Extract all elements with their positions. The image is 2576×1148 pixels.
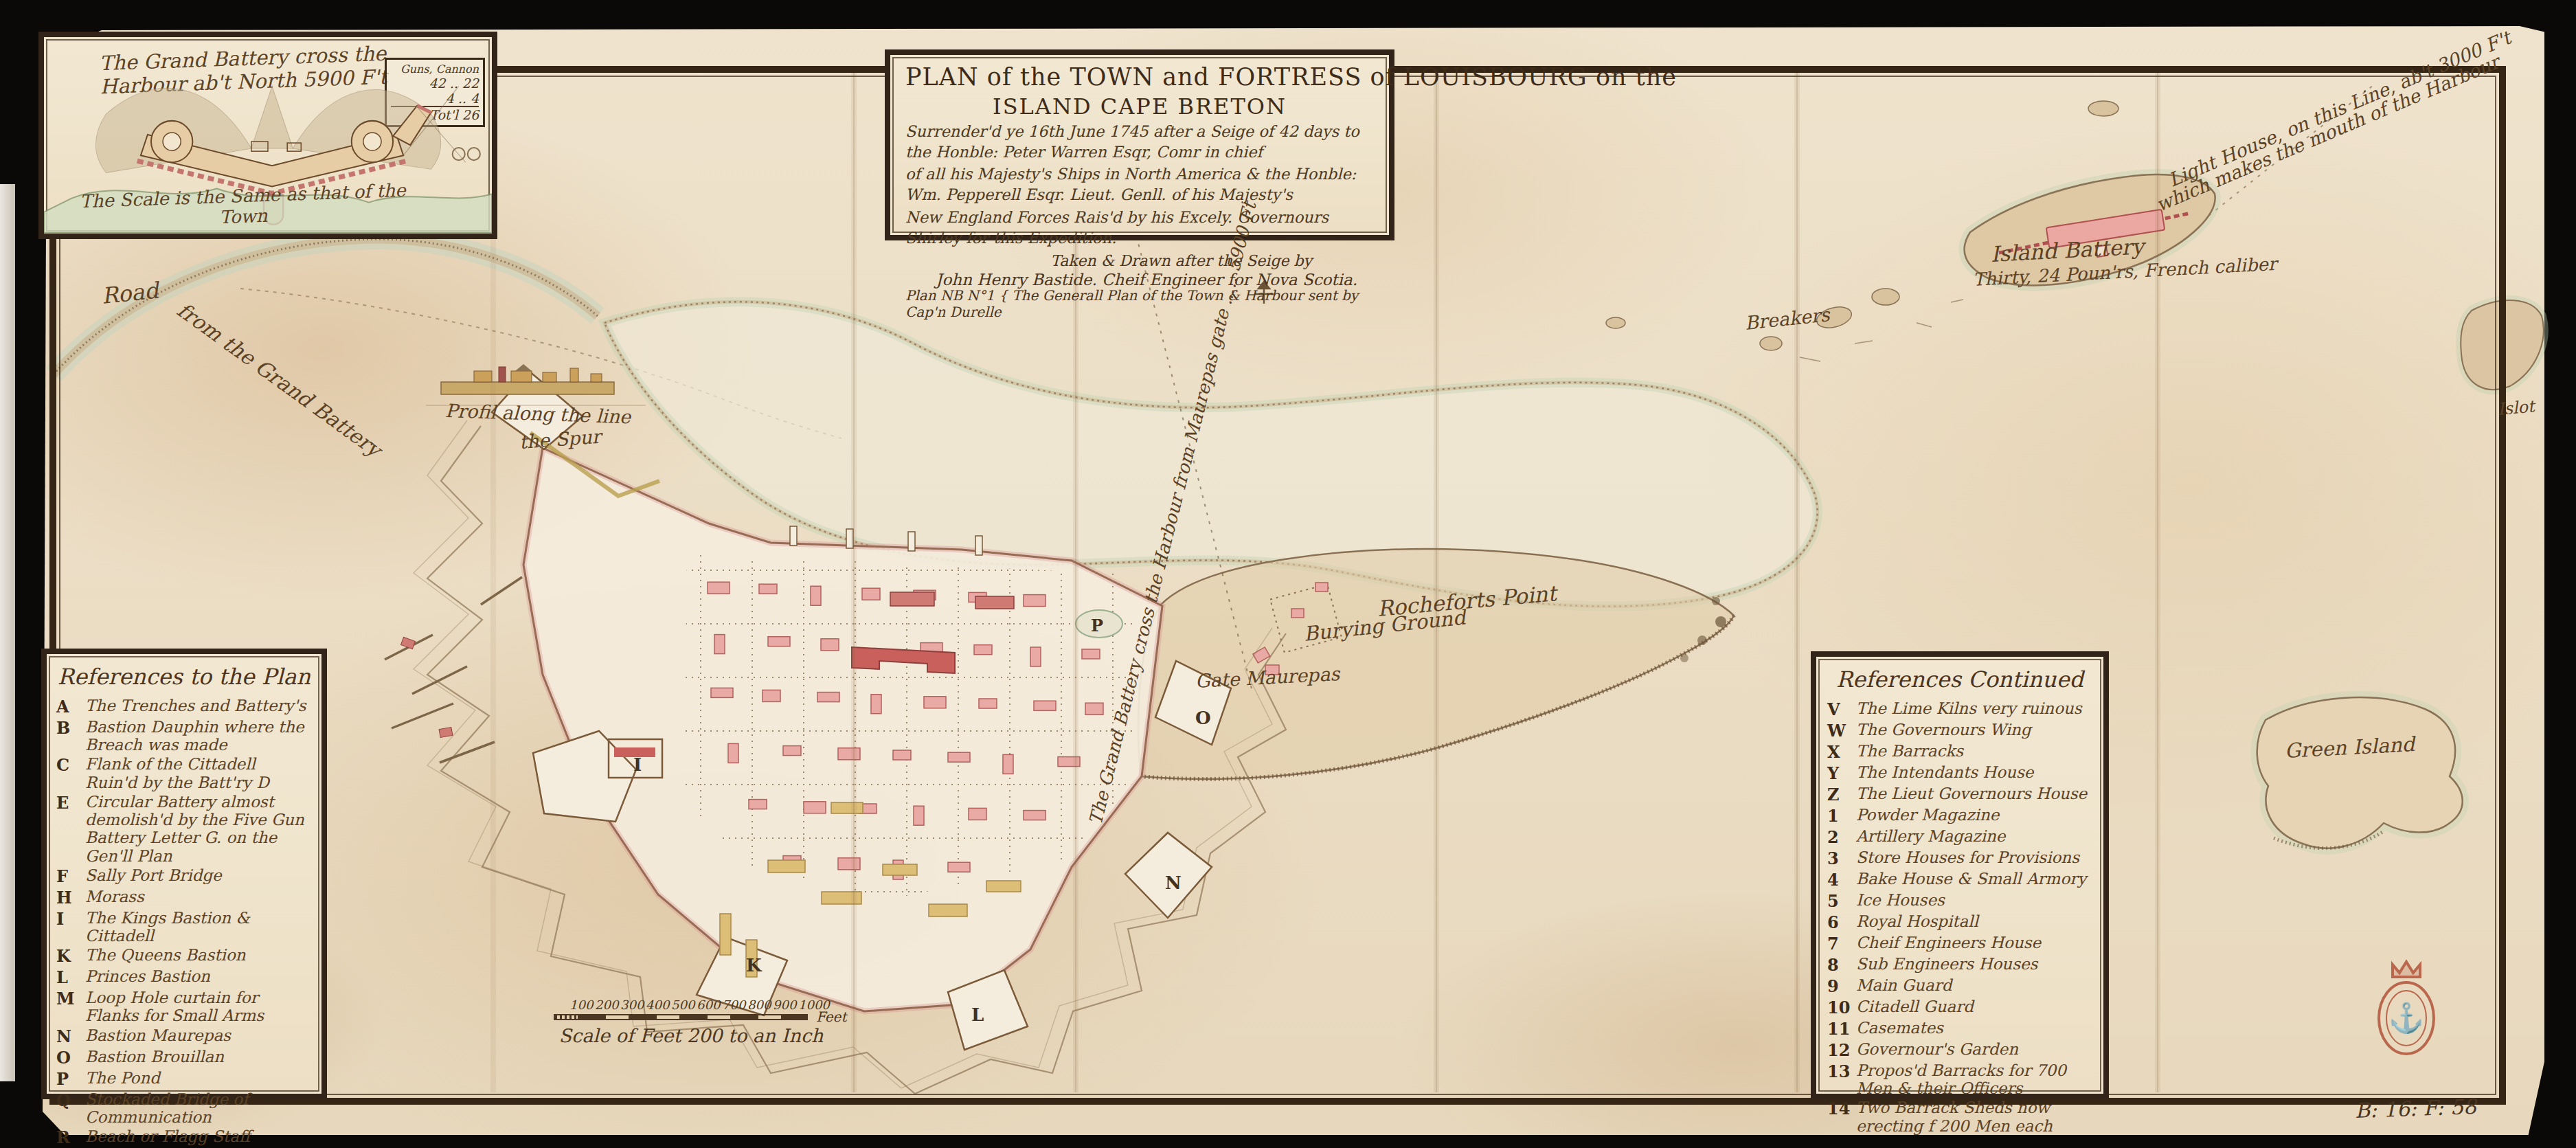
reference-item: ZThe Lieut Governours House <box>1827 785 2092 804</box>
reference-item: HMorass <box>56 888 312 908</box>
plan-note: Plan NB N°1 { The Generall Plan of the T… <box>905 287 1374 320</box>
map-title-line1: PLAN of the TOWN and FORTRESS of LOUISBO… <box>905 63 1374 91</box>
reference-item: 4Bake House & Small Armory <box>1827 870 2092 890</box>
reference-item: KThe Queens Bastion <box>56 946 312 966</box>
reference-item: AThe Trenches and Battery's <box>56 697 312 717</box>
references-continued-panel: References Continued VThe Lime Kilns ver… <box>1811 651 2109 1099</box>
reference-item: QStockaded Bridge of Communication <box>56 1090 312 1126</box>
reference-item: WThe Governours Wing <box>1827 721 2092 741</box>
reference-item: 11Casemates <box>1827 1019 2092 1039</box>
taken-by-line: Taken & Drawn after the Seige by <box>905 252 1374 269</box>
title-cartouche: PLAN of the TOWN and FORTRESS of LOUISBO… <box>885 49 1394 240</box>
dedication-line: of all his Majesty's Ships in North Amer… <box>905 164 1374 205</box>
reference-item: MLoop Hole curtain for Flanks for Small … <box>56 989 312 1024</box>
reference-item: OBastion Brouillan <box>56 1048 312 1068</box>
reference-item: XThe Barracks <box>1827 742 2092 762</box>
references-continued-title: References Continued <box>1827 666 2092 693</box>
reference-item: 14Two Barrack Sheds now erecting f 200 M… <box>1827 1099 2092 1134</box>
reference-item: 8Sub Engineers Houses <box>1827 955 2092 975</box>
reference-item: YThe Intendants House <box>1827 763 2092 783</box>
reference-item: 6Royal Hospitall <box>1827 912 2092 932</box>
lighthouse-sight-line <box>2195 82 2377 227</box>
reference-item: NBastion Maurepas <box>56 1026 312 1046</box>
references-plan-list: AThe Trenches and Battery'sBBastion Daup… <box>56 697 312 1148</box>
reference-item: RBeach or Flagg Staff Battery <box>56 1127 312 1148</box>
reference-item: VThe Lime Kilns very ruinous <box>1827 699 2092 719</box>
references-continued-list: VThe Lime Kilns very ruinousWThe Governo… <box>1827 699 2092 1135</box>
royal-crest-stamp-icon: ⚓ <box>2369 955 2444 1068</box>
map-title-line2: ISLAND CAPE BRETON <box>905 93 1374 120</box>
reference-item: 7Cheif Engineers House <box>1827 934 2092 954</box>
reference-item: 10Citadell Guard <box>1827 998 2092 1017</box>
island-battery-island <box>1965 175 2215 285</box>
reference-item: 5Ice Houses <box>1827 891 2092 911</box>
references-plan-title: References to the Plan <box>56 664 312 690</box>
reference-item: ECircular Battery almost demolish'd by t… <box>56 793 312 865</box>
margin-note: B: 16: F: 58 <box>2354 1094 2476 1123</box>
reference-item: 12Governour's Garden <box>1827 1040 2092 1060</box>
reference-item: 9Main Guard <box>1827 976 2092 996</box>
dedication-line: New England Forces Rais'd by his Excely.… <box>905 207 1374 248</box>
reference-item: BBastion Dauphin where the Breach was ma… <box>56 718 312 754</box>
reference-item: 13Propos'd Barracks for 700 Men & their … <box>1827 1061 2092 1097</box>
scanned-map-image: The Grand Battery cross the Harbour ab't… <box>0 0 2576 1148</box>
reference-item: LPrinces Bastion <box>56 967 312 987</box>
green-island <box>2257 697 2463 848</box>
siege-trenches <box>385 577 522 763</box>
reference-item: 1Powder Magazine <box>1827 806 2092 826</box>
author-line: John Henry Bastide. Cheif Engineer for N… <box>905 271 1374 289</box>
anchor-icon: ⚓ <box>2388 1001 2425 1035</box>
references-plan-panel: References to the Plan AThe Trenches and… <box>41 649 327 1099</box>
reference-item: IThe Kings Bastion & Cittadell <box>56 909 312 945</box>
reference-item: CFlank of the Cittadell Ruin'd by the Ba… <box>56 755 312 791</box>
dedication-line: Surrender'd ye 16th June 1745 after a Se… <box>905 121 1374 162</box>
grand-battery-inset: The Grand Battery cross the Harbour ab't… <box>38 32 497 239</box>
scale-bar: 1002003004005006007008009001000FeetScale… <box>554 998 842 1053</box>
plan-note-label: Plan NB N°1 { <box>905 287 1008 304</box>
reference-item: PThe Pond <box>56 1069 312 1089</box>
reference-item: 2Artillery Magazine <box>1827 827 2092 847</box>
east-islet <box>2461 300 2543 390</box>
reference-item: FSally Port Bridge <box>56 866 312 886</box>
reference-item: 3Store Houses for Provisions <box>1827 848 2092 868</box>
